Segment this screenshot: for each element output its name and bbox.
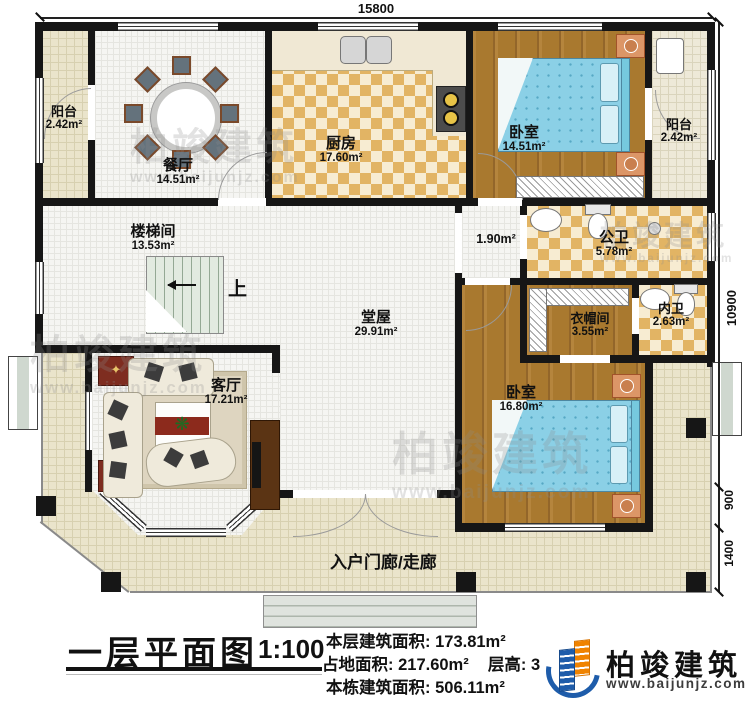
room-label-kitchen: 厨房 17.60m² (320, 136, 363, 164)
logo-tower-blue (559, 648, 575, 692)
washer (656, 38, 684, 74)
window-living-bay-bottom (146, 528, 226, 537)
door-gap-balconyR (645, 88, 652, 140)
dim-right-total: 10900 (724, 290, 739, 326)
watermark: 柏竣建筑 www.baijunjz.com (392, 418, 592, 504)
room-label-public-bath: 公卫 5.78m² (596, 230, 632, 258)
room-label-bedroom-top: 卧室 14.51m² (503, 125, 546, 153)
wall-v-bedroomB-east (645, 355, 653, 532)
room-label-hall: 堂屋 29.91m² (355, 310, 398, 338)
wardrobe-bedroomT (516, 176, 644, 198)
column (686, 418, 706, 438)
wall-h-mid1 (35, 198, 715, 206)
nightstand (612, 494, 641, 518)
window-stairwell-left (35, 262, 44, 314)
room-label-cloakroom: 衣帽间 3.55m² (570, 312, 609, 338)
room-label-living: 客厅 17.21m² (205, 378, 248, 406)
window-balconyR-right (707, 70, 716, 160)
headboard (631, 400, 640, 492)
stove-burner (443, 110, 459, 126)
room-label-porch: 入户门廊/走廊 (330, 548, 437, 573)
wardrobe-cloak-top (545, 288, 629, 306)
column (456, 572, 476, 592)
room-label-bedroom-bottom: 卧室 16.80m² (500, 385, 543, 413)
opening-hall-corridor (455, 213, 462, 273)
kitchen-sink (366, 36, 392, 64)
wall-bath-south (520, 355, 715, 363)
door-gap-privbath (632, 298, 639, 334)
room-label-balcony-right: 阳台 2.42m² (661, 118, 697, 144)
door-gap-publicbath (520, 215, 527, 259)
pillow (600, 63, 619, 102)
window-living-west (85, 392, 92, 450)
room-label-private-bath: 内卫 2.63m² (653, 302, 689, 328)
nightstand (616, 34, 645, 58)
bath-sink (530, 208, 562, 232)
room-label-stairwell: 楼梯间 13.53m² (130, 224, 175, 252)
table-plant: ❋ (172, 414, 192, 434)
watermark: 柏竣建筑 www.baijunjz.com (30, 322, 207, 398)
door-gap-bedroomB (465, 278, 510, 285)
nightstand (616, 152, 645, 176)
nightstand (612, 374, 641, 398)
porch-edge (130, 591, 712, 593)
stove-burner (443, 92, 459, 108)
watermark: 柏竣建筑 www.baijunjz.com (130, 116, 300, 187)
room-label-balcony-left: 阳台 2.42m² (46, 105, 82, 131)
wall-stub-living-hall (272, 345, 280, 373)
window-balconyL-left (35, 78, 44, 163)
stairs-up-label: 上 (228, 274, 247, 301)
floor-area-line: 本层建筑面积: 173.81m² (326, 628, 506, 652)
wall-v-kitchen-bedroom (466, 30, 473, 198)
dim-right-900: 900 (722, 490, 736, 510)
stairs-arrowhead (162, 280, 176, 290)
brand-logo-icon (546, 636, 600, 694)
window-kitchen-top (318, 22, 418, 31)
land-area-line: 占地面积: 217.60m² 层高: 3 (322, 651, 540, 675)
room-label-corridor: 1.90m² (476, 233, 516, 246)
window-bedroomT-top (498, 22, 602, 31)
headboard (621, 58, 630, 152)
brand-url: www.baijunjz.com (606, 676, 747, 691)
sofa-cushion (109, 431, 128, 450)
pillow (600, 105, 619, 144)
kitchen-sink (340, 36, 366, 64)
dim-line-right (718, 22, 720, 592)
door-gap-cloak (560, 355, 610, 363)
title-underline-thin (66, 674, 322, 675)
entrance-steps (263, 595, 477, 628)
total-area-line: 本栋建筑面积: 506.11m² (326, 674, 505, 698)
sheet-scale: 1:100 (258, 634, 325, 665)
window-bedroomB-south (505, 523, 605, 532)
pillow (610, 446, 628, 484)
wardrobe-cloak-left (529, 288, 547, 352)
pillow (610, 405, 628, 443)
title-underline (66, 667, 322, 671)
dim-right-1400: 1400 (722, 540, 736, 567)
dim-top-width: 15800 (354, 1, 398, 16)
column (686, 572, 706, 592)
floor-plan-sheet: ✦ ✦ ❋ 阳台 2.42m² 餐厅 14.51m² 厨房 17.60m² 卧室… (0, 0, 750, 707)
dining-chair (172, 56, 191, 75)
window-dining-top (118, 22, 218, 31)
logo-tower-orange (574, 639, 590, 677)
tv (252, 442, 261, 488)
dim-line-top (40, 17, 712, 19)
bay-window-right (712, 362, 742, 436)
column (36, 496, 56, 516)
sofa-cushion (109, 461, 127, 479)
column (101, 572, 121, 592)
room-label-dining: 餐厅 14.51m² (157, 158, 200, 186)
